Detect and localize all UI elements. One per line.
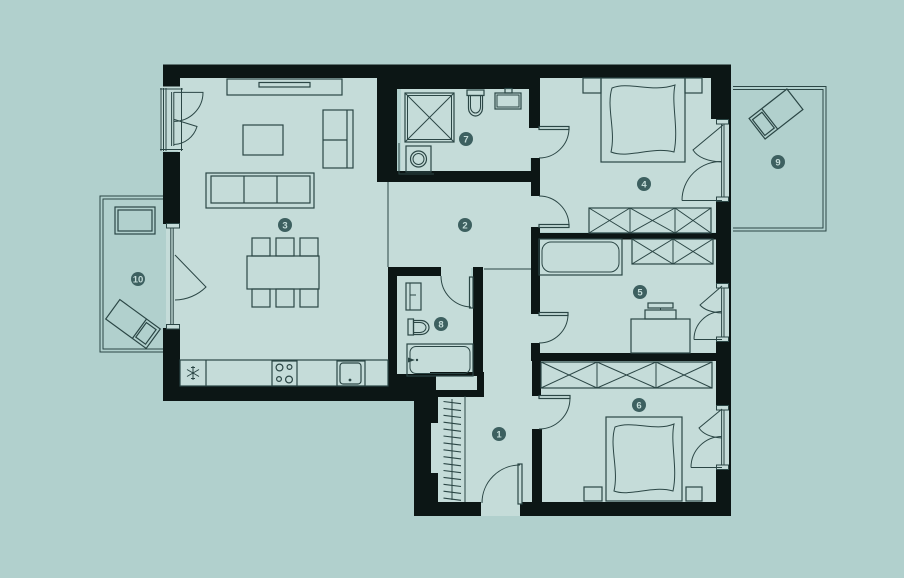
svg-text:9: 9 bbox=[775, 158, 780, 169]
svg-text:8: 8 bbox=[438, 320, 443, 331]
svg-text:3: 3 bbox=[282, 221, 287, 232]
svg-text:1: 1 bbox=[496, 430, 502, 441]
svg-text:7: 7 bbox=[463, 135, 468, 146]
svg-text:6: 6 bbox=[636, 401, 641, 412]
svg-text:4: 4 bbox=[641, 180, 647, 191]
svg-text:2: 2 bbox=[462, 221, 467, 232]
svg-text:5: 5 bbox=[637, 288, 643, 299]
svg-text:10: 10 bbox=[133, 274, 144, 285]
